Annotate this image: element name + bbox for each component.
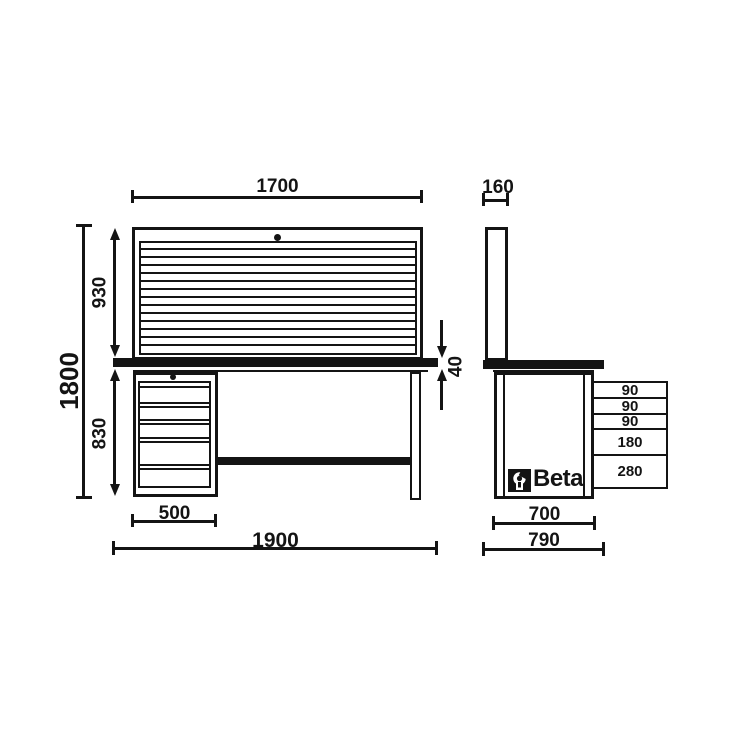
- worktop-front: [113, 358, 438, 367]
- drawer-height-row-4: 180: [592, 428, 668, 456]
- dim-worktop-line-upper: [440, 320, 443, 347]
- dim-panel-height-line: [113, 238, 116, 348]
- dim-total-depth-line: [483, 548, 605, 551]
- dim-total-width-tick-right: [435, 541, 438, 555]
- drawer-separator-4: [140, 437, 209, 443]
- dim-total-width-line: [113, 547, 438, 550]
- dim-panel-height-label: 930: [91, 263, 110, 323]
- dim-total-height-cap-bottom: [76, 496, 92, 499]
- dim-worktop-line-lower: [440, 380, 443, 410]
- dim-drawer-unit-width-tick-left: [131, 514, 134, 527]
- dim-cabinet-depth-line: [493, 522, 596, 525]
- cabinet-side-inner-wall-right: [583, 375, 585, 496]
- dim-drawer-unit-width-tick-right: [214, 514, 217, 527]
- dim-panel-depth-tick-right: [506, 193, 509, 206]
- drawer-separator-2: [140, 402, 209, 408]
- louvre-tool-panel: [139, 241, 417, 355]
- dim-panel-height-arrow-bottom: [110, 345, 120, 357]
- dim-lower-height-arrow-bottom: [110, 484, 120, 496]
- bench-right-leg: [410, 372, 421, 500]
- dim-lower-height-line: [113, 379, 116, 486]
- drawer-separator-3: [140, 419, 209, 425]
- dim-lower-height-label: 830: [91, 404, 110, 464]
- stretcher-bar: [218, 457, 410, 465]
- dim-total-height-label: 1800: [56, 341, 82, 421]
- drawer-separator-1: [140, 386, 209, 388]
- drawer-stack: [138, 381, 211, 488]
- dim-worktop-thickness-label: 40: [447, 347, 466, 387]
- dim-total-depth-tick-left: [482, 542, 485, 556]
- dim-total-depth-tick-right: [602, 542, 605, 556]
- dim-total-width-tick-left: [112, 541, 115, 555]
- dim-top-width-line: [132, 196, 423, 199]
- cabinet-side-inner-wall-left: [503, 375, 505, 496]
- worktop-side: [483, 360, 604, 369]
- dim-top-width-tick-left: [131, 190, 134, 203]
- dim-top-width-tick-right: [420, 190, 423, 203]
- dim-drawer-unit-width-line: [132, 520, 217, 523]
- drawer-unit-lock-dot: [170, 374, 176, 380]
- dim-cabinet-depth-tick-left: [492, 516, 495, 530]
- drawer-height-row-5: 280: [592, 454, 668, 489]
- dim-panel-depth-tick-left: [482, 193, 485, 206]
- dim-cabinet-depth-tick-right: [593, 516, 596, 530]
- louvre-slots: [141, 248, 415, 350]
- beta-logo-text: Beta: [533, 467, 583, 491]
- back-panel-side: [485, 227, 508, 361]
- workbench-technical-drawing: 1700 930: [0, 0, 750, 750]
- beta-logo-icon: [508, 469, 531, 492]
- dim-top-width-label: 1700: [132, 177, 423, 196]
- panel-lock-dot: [274, 234, 281, 241]
- drawer-separator-5: [140, 464, 209, 470]
